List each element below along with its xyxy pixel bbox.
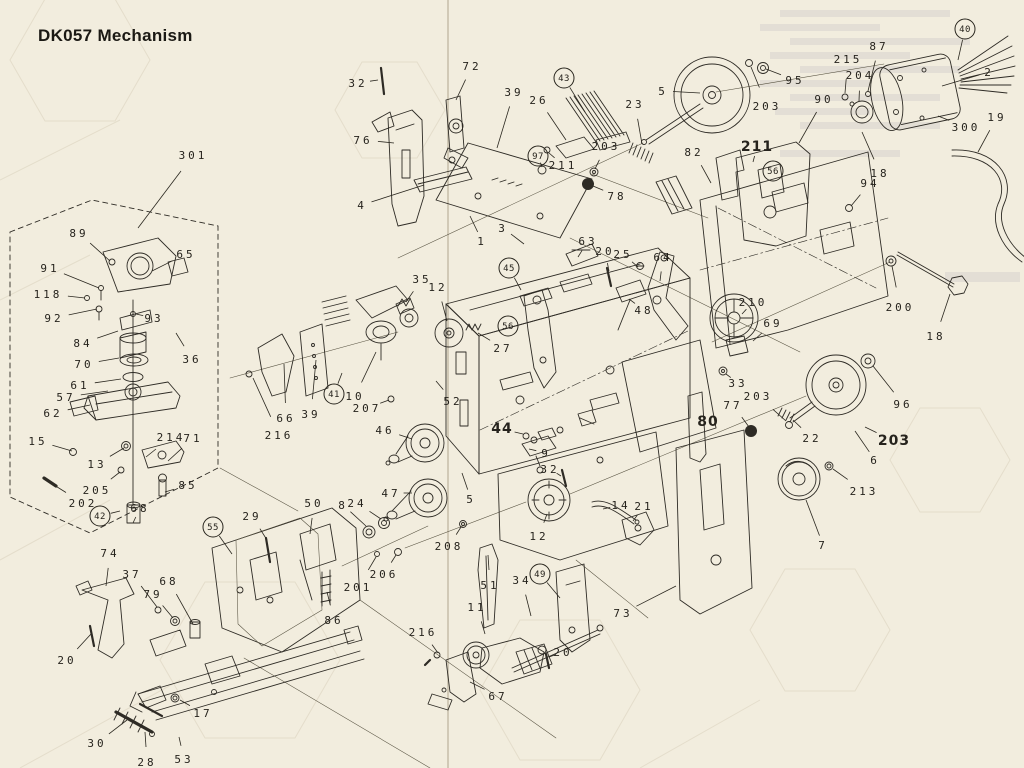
part-label-200: 200 <box>886 301 915 314</box>
levers-14-21-51 <box>478 501 654 652</box>
part-label-69: 69 <box>763 317 782 330</box>
leader-line <box>544 514 547 523</box>
part-label-211: 211 <box>741 139 773 155</box>
leader-line <box>399 435 412 439</box>
part-label-82: 82 <box>684 146 703 159</box>
leader-line <box>806 500 820 536</box>
part-label-210: 210 <box>739 296 768 309</box>
part-label-73: 73 <box>613 607 632 620</box>
part-label-216: 216 <box>265 429 294 442</box>
leader-line <box>391 555 396 563</box>
part-label-74: 74 <box>100 547 119 560</box>
leader-line <box>310 518 312 534</box>
leader-line <box>701 165 711 183</box>
leader-line <box>432 645 438 653</box>
part-label-8: 8 <box>338 499 348 512</box>
leader-line <box>99 358 119 362</box>
part-label-64: 64 <box>653 251 672 264</box>
part-label-25: 25 <box>613 248 632 261</box>
part-label-85: 85 <box>178 479 197 492</box>
leader-line <box>338 373 342 384</box>
leader-line <box>938 116 949 120</box>
part-label-34: 34 <box>512 574 531 587</box>
part-label-70: 70 <box>74 358 93 371</box>
part-label-18: 18 <box>926 330 945 343</box>
part-label-53: 53 <box>174 753 193 766</box>
leader-line <box>595 160 599 169</box>
lever-74-group <box>76 578 200 658</box>
leader-line <box>176 333 184 346</box>
leader-line <box>52 445 72 451</box>
part-label-13: 13 <box>87 458 106 471</box>
part-label-62: 62 <box>43 407 62 420</box>
part-label-50: 50 <box>304 497 323 510</box>
part-label-4: 4 <box>357 199 367 212</box>
leader-line <box>168 448 182 461</box>
part-label-6: 6 <box>870 454 880 467</box>
part-label-94: 94 <box>860 177 879 190</box>
leader-line <box>636 586 676 606</box>
leader-line <box>138 171 181 228</box>
part-label-47: 47 <box>381 487 400 500</box>
part-label-79: 79 <box>143 588 162 601</box>
leader-line <box>145 732 146 747</box>
part-label-55: 55 <box>207 523 219 533</box>
part-label-216: 216 <box>409 626 438 639</box>
plate-73 <box>676 430 752 614</box>
leader-line <box>163 606 173 619</box>
part-label-92: 92 <box>44 312 63 325</box>
part-label-204: 204 <box>846 69 875 82</box>
part-label-65: 65 <box>176 248 195 261</box>
leader-line <box>136 314 143 316</box>
leader-line <box>54 485 66 493</box>
part-label-203: 203 <box>878 433 910 449</box>
leader-line <box>380 400 389 403</box>
part-label-93: 93 <box>144 312 163 325</box>
leader-line <box>773 409 786 421</box>
bracket-76-lever-72 <box>372 68 472 226</box>
part-label-56: 56 <box>767 167 779 177</box>
leader-line <box>660 271 661 281</box>
leader-line <box>110 448 124 456</box>
leader-line <box>284 364 285 403</box>
leader-line <box>253 378 271 417</box>
part-label-23: 23 <box>625 98 644 111</box>
leader-line <box>833 469 848 479</box>
part-label-14: 14 <box>611 499 630 512</box>
part-label-215: 215 <box>834 53 863 66</box>
leader-line <box>873 366 894 392</box>
leader-line <box>180 700 190 706</box>
leader-line <box>497 106 510 148</box>
part-label-201: 201 <box>344 581 373 594</box>
part-label-71: 71 <box>183 432 202 445</box>
leader-line <box>179 737 181 746</box>
part-label-207: 207 <box>353 402 382 415</box>
leader-line <box>111 511 120 513</box>
part-label-66: 66 <box>276 412 295 425</box>
head-assembly-301 <box>44 238 188 523</box>
part-label-76: 76 <box>353 134 372 147</box>
part-label-202: 202 <box>69 497 98 510</box>
part-label-5: 5 <box>466 493 476 506</box>
part-label-22: 22 <box>802 432 821 445</box>
leader-line <box>851 195 860 206</box>
leader-line <box>578 251 582 257</box>
leader-line <box>638 119 642 144</box>
leader-line <box>133 517 136 523</box>
part-label-211: 211 <box>549 159 578 172</box>
part-label-90: 90 <box>814 93 833 106</box>
part-label-46: 46 <box>375 424 394 437</box>
part-label-41: 41 <box>328 390 340 400</box>
part-label-30: 30 <box>87 737 106 750</box>
part-label-24: 24 <box>347 497 366 510</box>
part-label-48: 48 <box>634 304 653 317</box>
part-label-29: 29 <box>242 510 261 523</box>
part-label-87: 87 <box>869 40 888 53</box>
scanned-page: DK057 Mechanism <box>0 0 1024 768</box>
part-label-68: 68 <box>159 575 178 588</box>
leader-line <box>941 294 950 322</box>
part-label-39: 39 <box>301 408 320 421</box>
leader-line <box>146 449 156 457</box>
part-label-15: 15 <box>28 435 47 448</box>
leader-line <box>370 80 378 81</box>
part-label-56: 56 <box>502 322 514 332</box>
part-label-300: 300 <box>952 121 981 134</box>
part-label-3: 3 <box>498 222 508 235</box>
part-label-84: 84 <box>73 337 92 350</box>
part-label-19: 19 <box>987 111 1006 124</box>
leader-line <box>514 278 521 290</box>
part-label-52: 52 <box>443 395 462 408</box>
leader-line <box>470 216 478 232</box>
leader-line <box>547 583 560 599</box>
part-label-40: 40 <box>959 25 971 35</box>
part-label-5: 5 <box>658 85 668 98</box>
part-label-27: 27 <box>493 342 512 355</box>
leader-line <box>64 274 99 288</box>
leader-line <box>350 512 366 526</box>
part-label-45: 45 <box>503 264 515 274</box>
leader-line <box>95 379 121 383</box>
part-label-86: 86 <box>324 614 343 627</box>
leader-line <box>436 381 443 390</box>
leader-line <box>97 331 118 338</box>
part-label-28: 28 <box>137 756 156 768</box>
leader-line <box>766 69 781 75</box>
leader-line <box>529 449 536 451</box>
part-label-203: 203 <box>592 140 621 153</box>
part-label-12: 12 <box>529 530 548 543</box>
leader-line <box>370 511 382 519</box>
leader-line <box>673 92 700 94</box>
part-label-20: 20 <box>595 245 614 258</box>
leader-line <box>865 427 877 433</box>
part-label-33: 33 <box>728 377 747 390</box>
leader-line <box>109 720 127 734</box>
base-rails-53 <box>114 626 364 737</box>
part-label-203: 203 <box>744 390 773 403</box>
part-label-72: 72 <box>462 60 481 73</box>
part-label-32: 32 <box>348 77 367 90</box>
part-label-1: 1 <box>477 235 487 248</box>
part-label-49: 49 <box>534 570 546 580</box>
part-label-203: 203 <box>753 100 782 113</box>
part-label-44: 44 <box>491 421 512 437</box>
leader-line <box>69 309 97 315</box>
part-label-21: 21 <box>634 500 653 513</box>
leader-line <box>511 234 524 244</box>
part-label-39: 39 <box>504 86 523 99</box>
watermark-bleedthrough-shapes <box>0 0 1010 768</box>
part-label-96: 96 <box>893 398 912 411</box>
part-label-214: 214 <box>157 431 186 444</box>
exploded-diagram: 3013272764392643972112032378136320256448… <box>0 0 1024 768</box>
leader-line <box>77 634 91 649</box>
part-label-12: 12 <box>428 281 447 294</box>
leader-line <box>526 595 531 616</box>
leader-line <box>456 80 466 100</box>
leader-line <box>372 185 425 202</box>
part-label-89: 89 <box>69 227 88 240</box>
part-label-43: 43 <box>558 74 570 84</box>
shifter-11-67 <box>425 625 603 710</box>
leader-line <box>90 243 110 261</box>
part-label-42: 42 <box>94 512 106 522</box>
part-label-26: 26 <box>529 94 548 107</box>
part-label-208: 208 <box>435 540 464 553</box>
part-label-57: 57 <box>56 391 75 404</box>
part-label-2: 2 <box>984 66 994 79</box>
leader-line <box>892 266 896 287</box>
leader-line <box>593 186 603 190</box>
part-label-206: 206 <box>370 568 399 581</box>
part-label-9: 9 <box>541 447 551 460</box>
part-label-97: 97 <box>532 152 544 162</box>
belt-19 <box>952 150 1024 262</box>
part-label-37: 37 <box>122 568 141 581</box>
leader-line <box>793 420 801 428</box>
part-label-11: 11 <box>467 601 486 614</box>
part-label-95: 95 <box>785 74 804 87</box>
leader-line <box>488 555 489 570</box>
part-label-51: 51 <box>480 579 499 592</box>
part-label-77: 77 <box>723 399 742 412</box>
leader-line <box>462 473 468 490</box>
part-label-118: 118 <box>34 288 63 301</box>
leader-line <box>378 141 394 143</box>
part-label-68: 68 <box>130 502 149 515</box>
part-label-20: 20 <box>553 646 572 659</box>
part-label-67: 67 <box>488 690 507 703</box>
part-label-205: 205 <box>83 484 112 497</box>
part-label-7: 7 <box>818 539 828 552</box>
part-label-32: 32 <box>540 463 559 476</box>
part-label-91: 91 <box>40 262 59 275</box>
leader-line <box>742 309 746 314</box>
leader-line <box>855 431 869 452</box>
part-label-80: 80 <box>697 414 718 430</box>
part-label-78: 78 <box>607 190 626 203</box>
leader-line <box>515 432 523 434</box>
diagram-artwork <box>10 36 1024 768</box>
part-label-301: 301 <box>179 149 208 162</box>
leader-line <box>549 153 555 158</box>
main-chassis <box>446 248 716 560</box>
leader-line <box>68 296 85 298</box>
leader-line <box>753 156 755 162</box>
leader-line <box>362 352 377 383</box>
part-label-17: 17 <box>193 707 212 720</box>
part-label-213: 213 <box>850 485 879 498</box>
part-label-20: 20 <box>57 654 76 667</box>
leader-line <box>547 112 566 140</box>
part-label-36: 36 <box>182 353 201 366</box>
leader-line <box>478 333 490 340</box>
leader-line <box>111 472 120 479</box>
